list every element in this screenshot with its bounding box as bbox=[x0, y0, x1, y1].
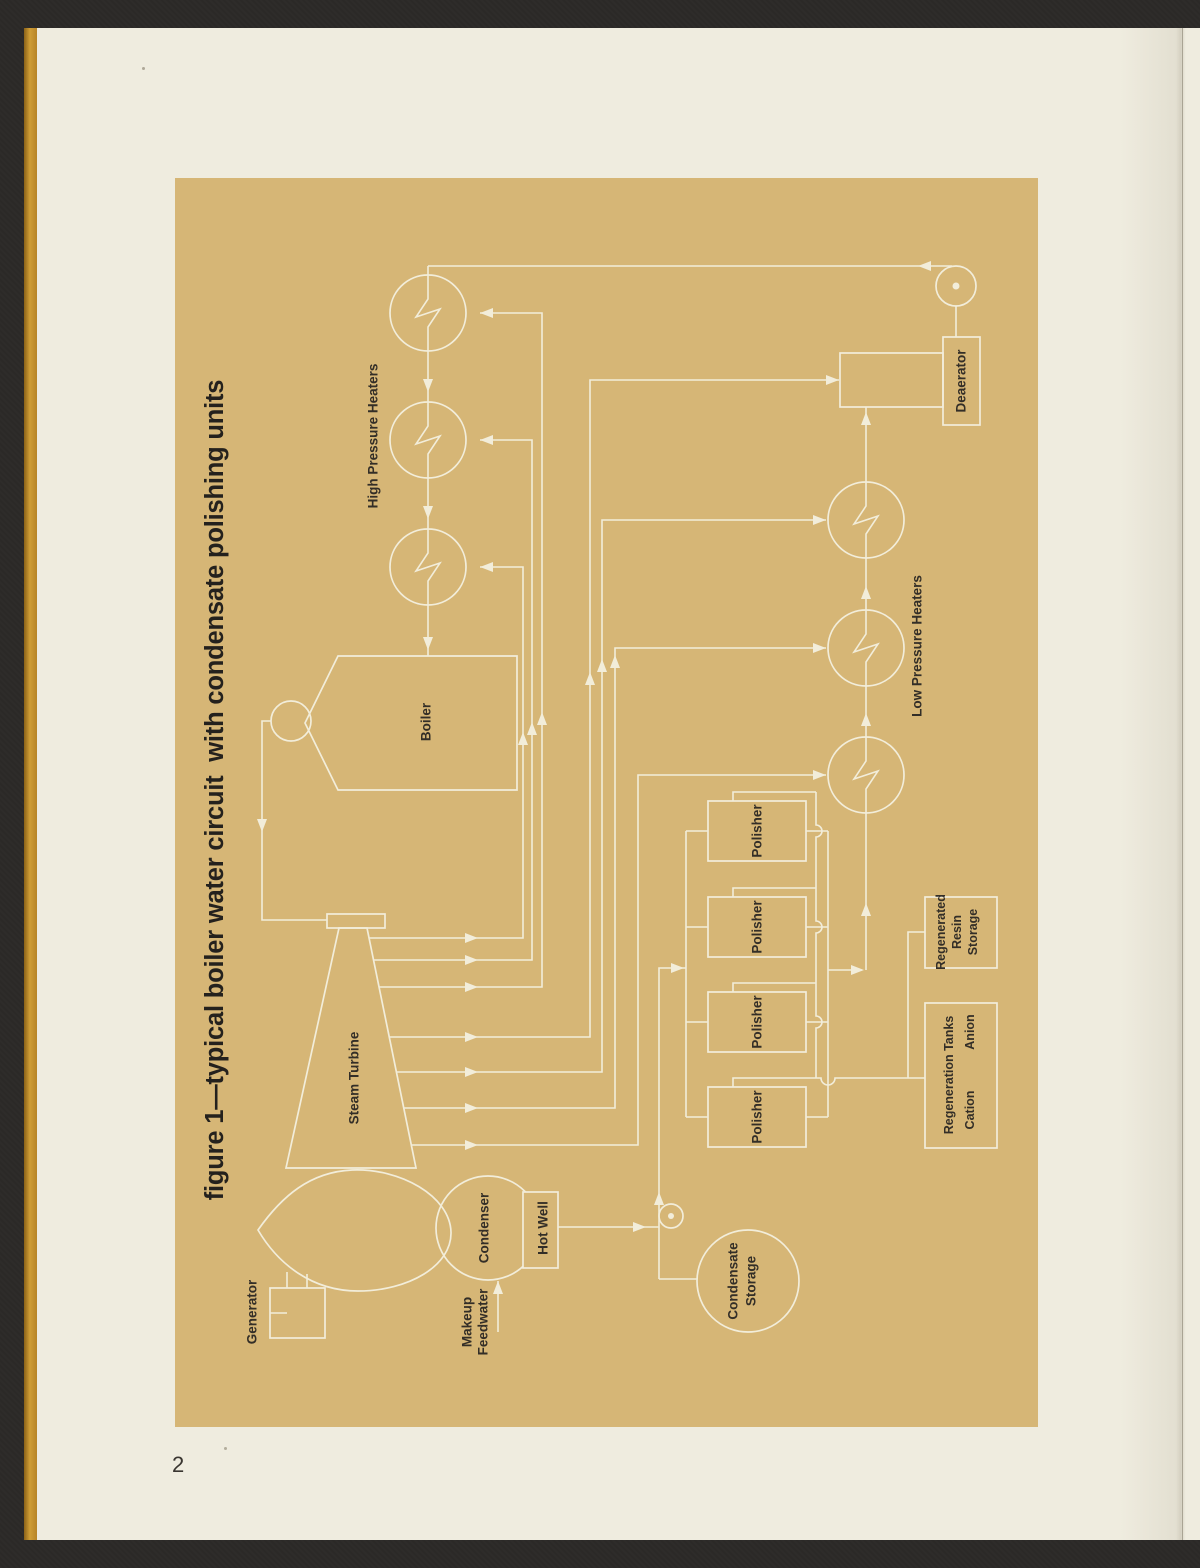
pump-dot bbox=[953, 283, 960, 290]
boiler-label: Boiler bbox=[419, 702, 434, 741]
condensate-pump-line bbox=[558, 963, 697, 1279]
pipe bbox=[262, 721, 327, 920]
regen-resin-label-1: Regenerated bbox=[934, 894, 948, 970]
flow-arrow-up bbox=[493, 1281, 503, 1294]
pipe bbox=[287, 1272, 307, 1288]
condensate-storage: Condensate Storage bbox=[697, 1230, 799, 1332]
dust-speck bbox=[224, 1447, 227, 1450]
flow-arrow-right bbox=[671, 963, 684, 973]
steam-turbine-label: Steam Turbine bbox=[347, 1031, 362, 1124]
cation-label: Cation bbox=[963, 1091, 977, 1130]
flow-arrow-right bbox=[465, 933, 478, 943]
makeup-feedwater-label-2: Feedwater bbox=[476, 1288, 491, 1356]
regen-resin-label-2: Resin bbox=[950, 915, 964, 949]
regeneration-equipment: Regenerated Resin Storage Regeneration T… bbox=[908, 894, 997, 1148]
flow-arrow-up bbox=[861, 586, 871, 599]
boiler: Boiler bbox=[271, 656, 517, 790]
condensate-storage-label-2: Storage bbox=[744, 1255, 759, 1306]
flow-arrow-right bbox=[813, 515, 826, 525]
heater-coil-icon bbox=[416, 275, 440, 351]
flow-arrow-down bbox=[423, 379, 433, 392]
polisher-label: Polisher bbox=[750, 804, 765, 858]
heater-coil-icon bbox=[416, 529, 440, 605]
heater-coil-icon bbox=[854, 610, 878, 686]
condenser-label: Condenser bbox=[477, 1192, 492, 1263]
regen-header bbox=[816, 792, 822, 1078]
flow-arrow-up bbox=[537, 712, 547, 725]
deaerator-storage-tank bbox=[840, 353, 943, 407]
heater-coil-icon bbox=[854, 482, 878, 558]
flow-arrow-up bbox=[610, 655, 620, 668]
steam-turbine: Steam Turbine bbox=[286, 914, 416, 1168]
anion-label: Anion bbox=[963, 1014, 977, 1049]
pump-dot bbox=[668, 1213, 674, 1219]
flow-arrow-up bbox=[518, 732, 528, 745]
flow-arrow-right bbox=[826, 375, 839, 385]
steam-drum-icon bbox=[271, 701, 311, 741]
boiler-feed-pump bbox=[936, 266, 976, 337]
regeneration-tanks bbox=[925, 1003, 997, 1148]
polisher-label: Polisher bbox=[750, 995, 765, 1049]
hp-heaters-label: High Pressure Heaters bbox=[366, 364, 381, 509]
deaerator-label: Deaerator bbox=[954, 349, 969, 413]
flow-arrow-down bbox=[423, 637, 433, 650]
makeup-feedwater: Makeup Feedwater bbox=[460, 1281, 504, 1355]
flow-arrow-up bbox=[585, 672, 595, 685]
pipe bbox=[908, 932, 925, 1078]
heater-coil-icon bbox=[416, 402, 440, 478]
flow-arrow-up bbox=[654, 1192, 664, 1205]
pipe bbox=[396, 520, 826, 1072]
flow-arrow-left bbox=[480, 435, 493, 445]
flow-arrow-right bbox=[465, 1067, 478, 1077]
flow-arrow-right bbox=[851, 965, 864, 975]
condenser-unit: Condenser Hot Well bbox=[436, 1176, 558, 1280]
flow-arrow-up bbox=[861, 903, 871, 916]
regen-resin-label-3: Storage bbox=[966, 909, 980, 956]
pipe bbox=[686, 831, 708, 1117]
flow-arrow-right bbox=[633, 1222, 646, 1232]
page-gutter-shading bbox=[1120, 28, 1200, 1540]
pipe bbox=[374, 440, 532, 960]
figure-panel: figure 1—typical boiler water circuit wi… bbox=[175, 178, 1038, 1427]
regen-transfer-line bbox=[816, 1078, 908, 1085]
page-number: 2 bbox=[172, 1452, 184, 1478]
main-steam-line bbox=[257, 721, 327, 920]
flow-arrow-up bbox=[597, 659, 607, 672]
hot-well-label: Hot Well bbox=[536, 1201, 551, 1255]
turbine-inlet bbox=[327, 914, 385, 928]
regeneration-tanks-label: Regeneration Tanks bbox=[942, 1016, 956, 1135]
book-spine-edge bbox=[24, 28, 37, 1540]
flow-arrow-up bbox=[861, 412, 871, 425]
flow-arrow-left bbox=[918, 261, 931, 271]
scanned-page: figure 1—typical boiler water circuit wi… bbox=[0, 0, 1200, 1568]
flow-arrow-right bbox=[465, 955, 478, 965]
pipe bbox=[379, 313, 542, 987]
flow-arrow-left bbox=[480, 562, 493, 572]
pipe bbox=[659, 968, 686, 1279]
pipe bbox=[369, 567, 523, 938]
heater-coil-icon bbox=[854, 737, 878, 813]
extraction-lines-hp bbox=[369, 308, 547, 992]
generator-label: Generator bbox=[245, 1279, 260, 1344]
high-pressure-heaters: High Pressure Heaters bbox=[366, 266, 467, 656]
deaerator-unit: Deaerator bbox=[840, 337, 980, 425]
page-crease bbox=[1182, 28, 1183, 1540]
condensate-polishers: Polisher Polisher Polisher Polisher bbox=[686, 792, 908, 1147]
flow-arrow-left bbox=[480, 308, 493, 318]
feedwater-top-line bbox=[428, 261, 952, 271]
flow-arrow-right bbox=[465, 1103, 478, 1113]
lp-heaters-label: Low Pressure Heaters bbox=[910, 575, 925, 717]
boiler-vessel bbox=[305, 656, 517, 790]
outlet-stubs bbox=[806, 831, 828, 1117]
flow-arrow-up bbox=[527, 722, 537, 735]
polisher-label: Polisher bbox=[750, 1090, 765, 1144]
flow-arrow-right bbox=[465, 1140, 478, 1150]
flow-arrow-up bbox=[861, 713, 871, 726]
flow-arrow-down bbox=[257, 819, 267, 832]
polisher-label: Polisher bbox=[750, 900, 765, 954]
regen-stubs bbox=[733, 792, 816, 1087]
extraction-lines-lp bbox=[389, 375, 839, 1150]
flow-arrow-right bbox=[465, 1032, 478, 1042]
low-pressure-heaters: Low Pressure Heaters bbox=[828, 407, 925, 970]
flow-arrow-right bbox=[813, 643, 826, 653]
generator-unit: Generator bbox=[245, 1170, 452, 1344]
figure-title: figure 1—typical boiler water circuit wi… bbox=[201, 380, 229, 1201]
flow-arrow-down bbox=[423, 506, 433, 519]
flow-arrow-right bbox=[465, 982, 478, 992]
condensate-storage-label-1: Condensate bbox=[726, 1242, 741, 1320]
figure-diagram: figure 1—typical boiler water circuit wi… bbox=[175, 178, 1038, 1427]
flow-arrow-right bbox=[813, 770, 826, 780]
makeup-feedwater-label-1: Makeup bbox=[460, 1297, 475, 1347]
dust-speck bbox=[142, 67, 145, 70]
